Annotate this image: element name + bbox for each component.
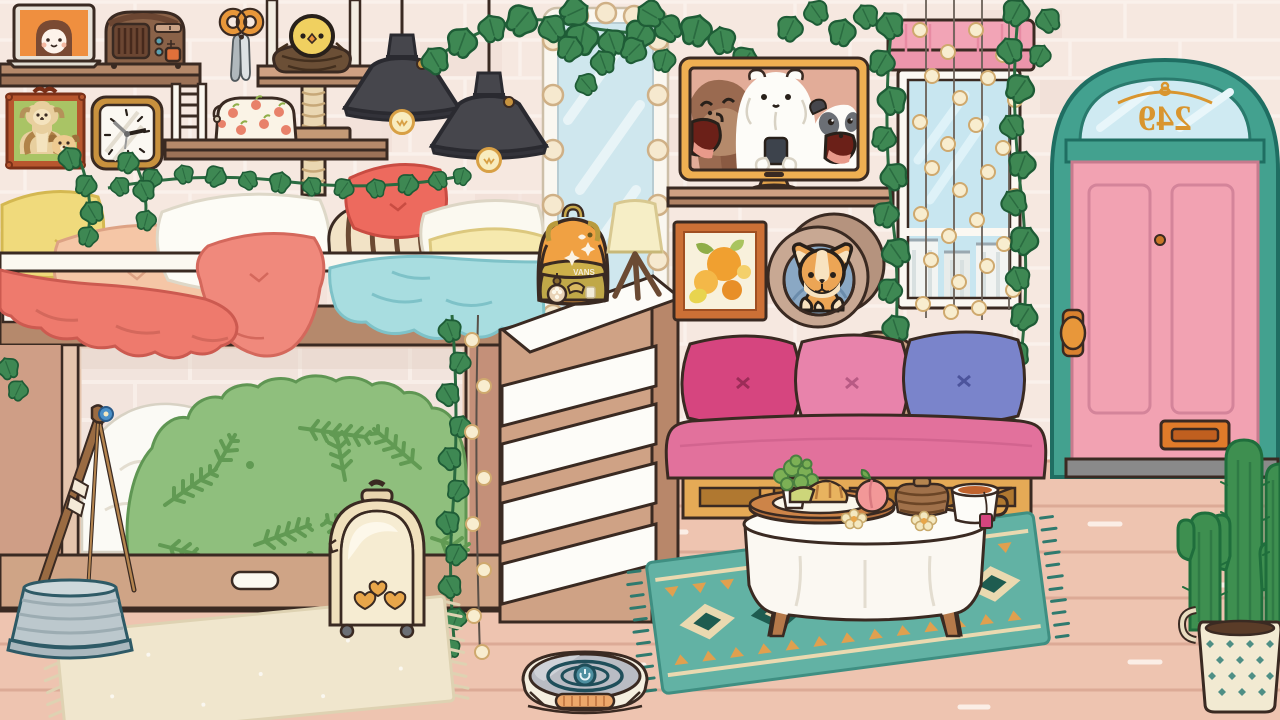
svg-text:249: 249 (1138, 98, 1192, 138)
svg-text:VANS: VANS (573, 268, 595, 277)
